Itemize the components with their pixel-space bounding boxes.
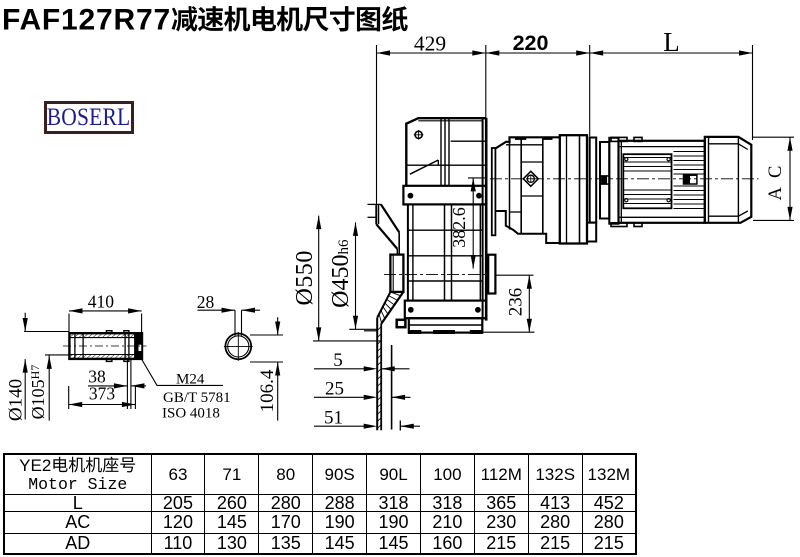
svg-text:51: 51	[324, 408, 343, 429]
svg-text:AC: AC	[766, 157, 786, 201]
svg-text:28: 28	[197, 292, 215, 312]
svg-text:429: 429	[414, 32, 446, 56]
svg-text:220: 220	[513, 31, 549, 55]
svg-text:M24: M24	[176, 372, 205, 388]
svg-text:ISO 4018: ISO 4018	[162, 406, 220, 422]
svg-text:Ø550: Ø550	[292, 250, 318, 305]
svg-text:25: 25	[325, 379, 344, 400]
svg-text:GB/T 5781: GB/T 5781	[163, 390, 231, 406]
svg-text:410: 410	[88, 292, 115, 312]
svg-text:382.6: 382.6	[449, 207, 469, 248]
svg-text:Ø105H7: Ø105H7	[28, 365, 48, 420]
svg-text:373: 373	[89, 384, 116, 404]
svg-text:236: 236	[506, 288, 527, 317]
svg-text:Ø450h6: Ø450h6	[328, 239, 354, 308]
svg-text:5: 5	[333, 350, 343, 371]
svg-text:Ø140: Ø140	[6, 379, 27, 421]
svg-text:L: L	[663, 27, 680, 57]
svg-text:106.4: 106.4	[257, 369, 278, 412]
